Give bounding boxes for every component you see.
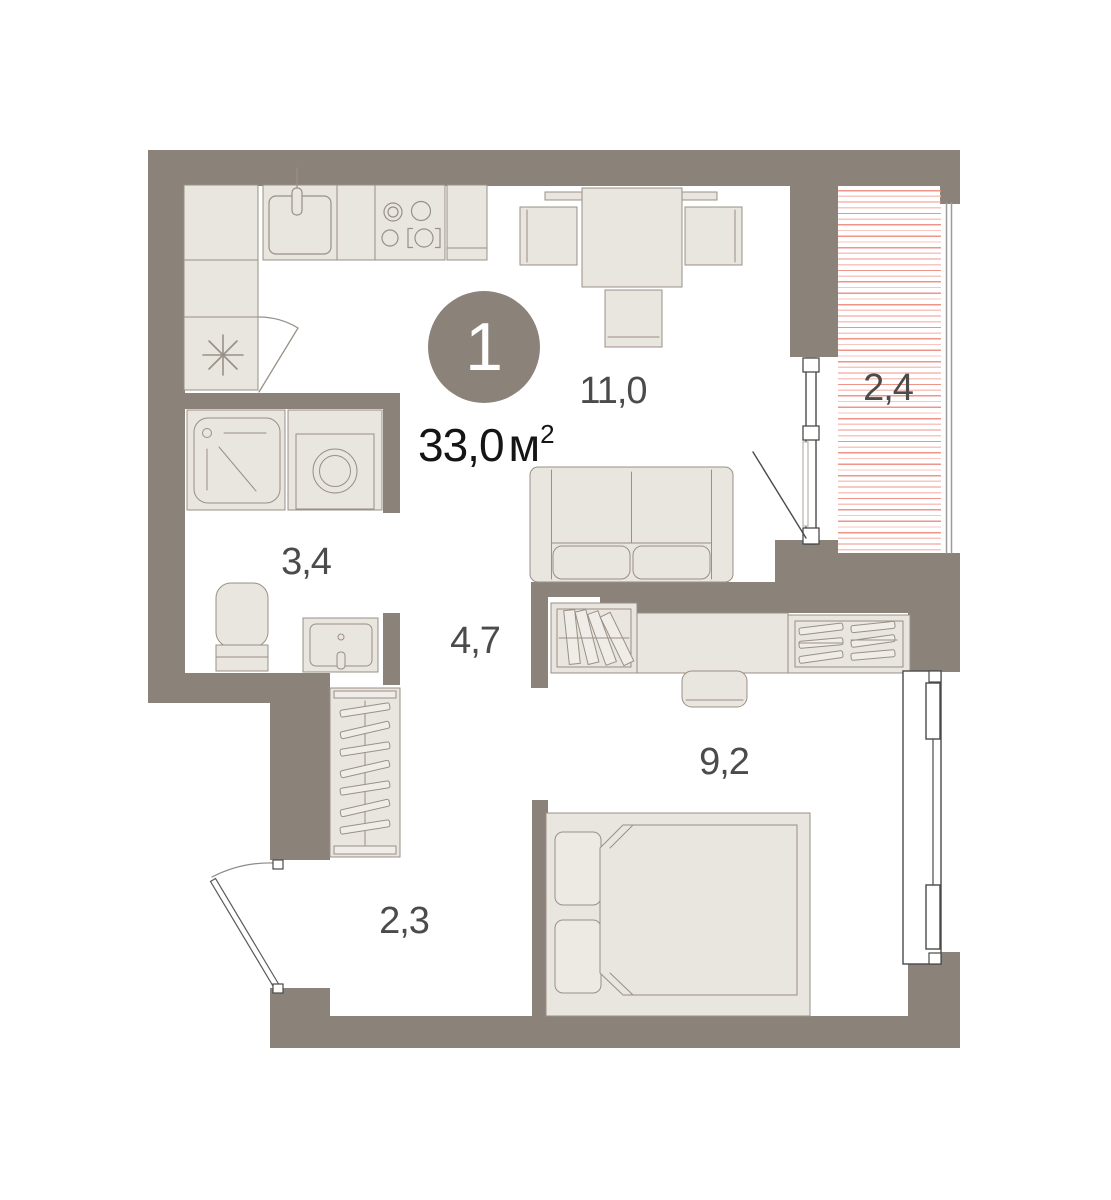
room-label-balcony: 2,4	[838, 368, 938, 408]
toilet	[216, 583, 268, 647]
dining-chair-right	[685, 207, 742, 265]
balcony-door-leaf	[753, 452, 806, 538]
room-label-living-kitchen: 11,0	[563, 371, 663, 411]
total-area-value: 33,0	[418, 419, 504, 471]
sofa	[530, 467, 733, 582]
entrance-door-arc	[212, 863, 274, 877]
desk	[637, 613, 788, 673]
kitchen-door-leaf	[259, 328, 298, 392]
shower-tray	[187, 410, 285, 510]
entrance-door	[211, 860, 284, 993]
pillow	[555, 920, 601, 993]
furniture-layer	[0, 0, 1111, 1200]
blanket	[600, 825, 797, 995]
stove-cabinet	[375, 185, 445, 260]
dining-table	[582, 188, 682, 287]
pillow	[555, 832, 601, 905]
room-label-entry-hall: 2,3	[354, 901, 454, 941]
fridge-snowflake-icon	[203, 335, 243, 375]
unit-number: 1	[465, 308, 503, 386]
kitchen-door-swing	[259, 317, 298, 392]
bed	[546, 813, 810, 1016]
bedroom-desk-unit	[551, 603, 910, 707]
total-area-power: 2	[540, 419, 553, 449]
room-label-bedroom: 9,2	[674, 742, 774, 782]
total-area: 33,0м2	[418, 418, 554, 468]
washing-machine	[288, 410, 382, 510]
dining-set	[520, 188, 742, 347]
entrance-door-leaf	[211, 879, 280, 989]
room-label-bathroom: 3,4	[256, 542, 356, 582]
room-label-hallway: 4,7	[425, 621, 525, 661]
dining-chair-bottom	[605, 290, 662, 347]
dining-chair-left	[520, 207, 577, 265]
desk-chair	[682, 671, 747, 707]
floor-plan: 11,0 2,4 3,4 4,7 9,2 2,3 1 33,0м2	[0, 0, 1111, 1200]
kitchen-door-arc	[259, 317, 298, 328]
total-area-unit: м	[509, 419, 540, 471]
unit-number-badge: 1	[428, 291, 540, 403]
bedroom-window	[903, 671, 941, 964]
entry-wardrobe	[330, 688, 400, 857]
